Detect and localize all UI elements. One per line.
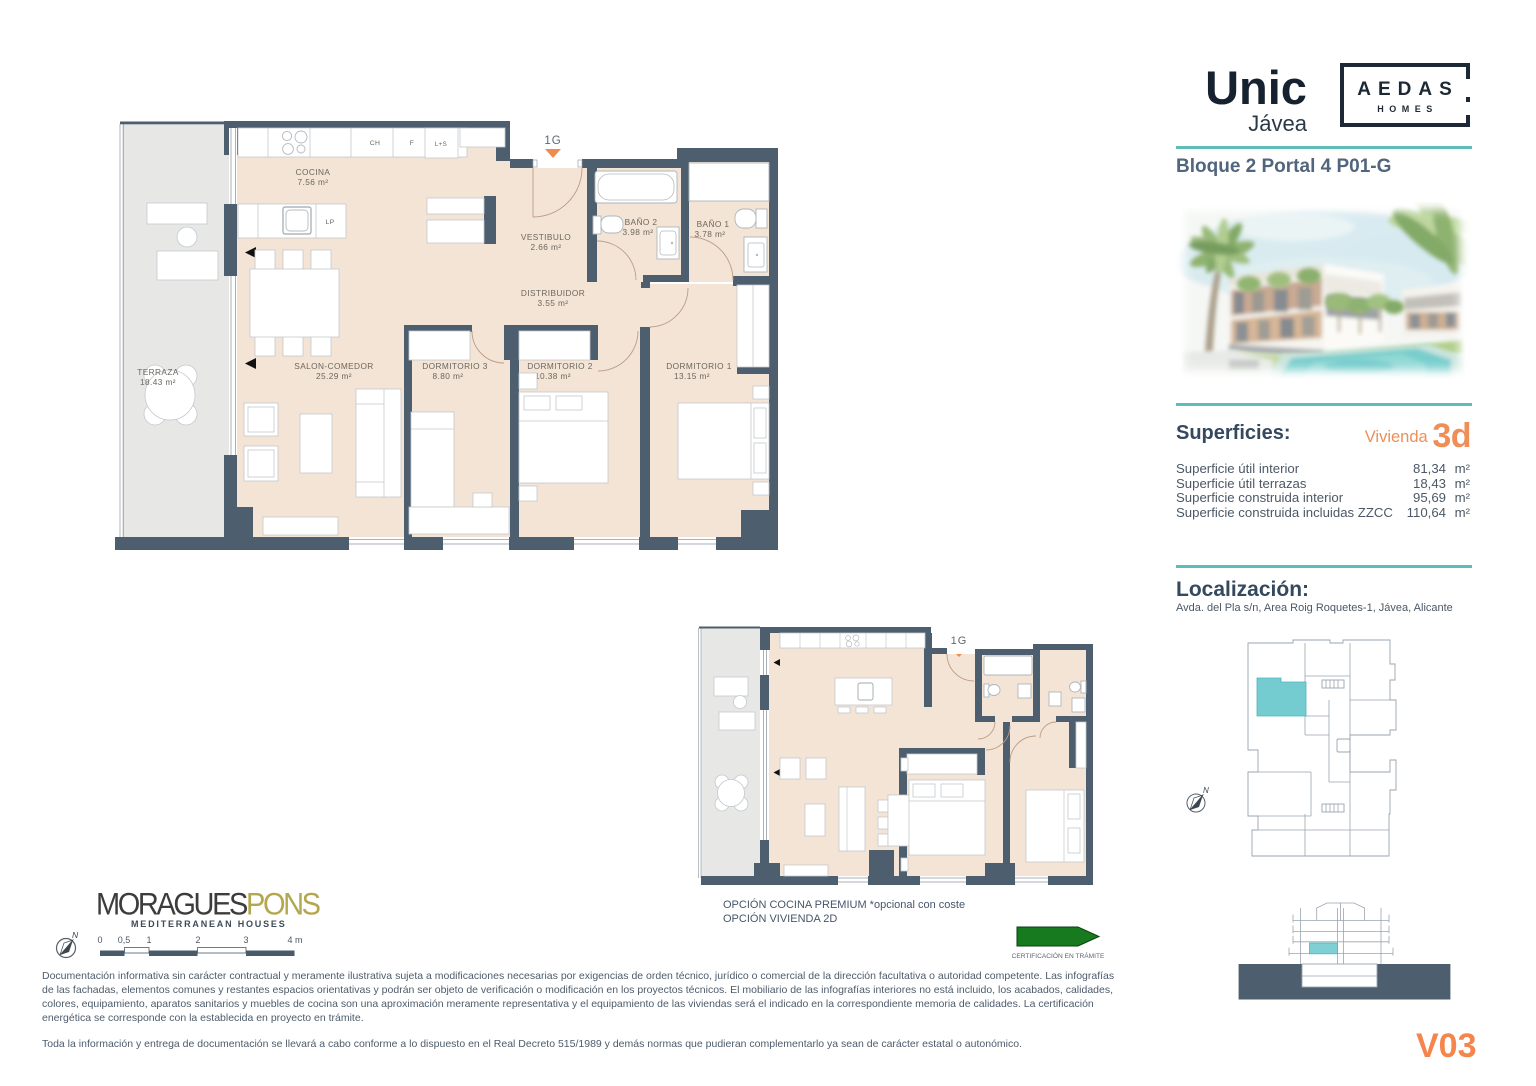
svg-text:8.80 m²: 8.80 m²: [433, 371, 464, 381]
svg-text:1G: 1G: [544, 135, 561, 147]
svg-text:N: N: [1203, 786, 1209, 795]
svg-text:13.15 m²: 13.15 m²: [674, 371, 710, 381]
svg-text:2.66 m²: 2.66 m²: [531, 242, 562, 252]
svg-text:TERRAZA: TERRAZA: [137, 367, 179, 377]
svg-text:L+S: L+S: [435, 141, 447, 148]
svg-text:4 m: 4 m: [287, 935, 302, 945]
svg-text:DISTRIBUIDOR: DISTRIBUIDOR: [521, 288, 585, 298]
svg-text:SALON-COMEDOR: SALON-COMEDOR: [294, 361, 373, 371]
svg-text:25.29 m²: 25.29 m²: [316, 371, 352, 381]
svg-text:3.55 m²: 3.55 m²: [538, 298, 569, 308]
svg-text:DORMITORIO 2: DORMITORIO 2: [527, 361, 593, 371]
svg-text:LP: LP: [325, 219, 334, 226]
svg-text:3: 3: [243, 935, 248, 945]
svg-text:BAÑO 2: BAÑO 2: [625, 217, 658, 227]
svg-text:2: 2: [195, 935, 200, 945]
svg-text:1G: 1G: [951, 635, 968, 647]
svg-text:18.43 m²: 18.43 m²: [140, 377, 176, 387]
svg-text:N: N: [72, 930, 79, 940]
svg-text:BAÑO 1: BAÑO 1: [697, 219, 730, 229]
svg-text:VESTIBULO: VESTIBULO: [521, 232, 571, 242]
svg-text:1: 1: [146, 935, 151, 945]
svg-text:7.56 m²: 7.56 m²: [298, 177, 329, 187]
svg-text:10.38 m²: 10.38 m²: [535, 371, 571, 381]
svg-text:DORMITORIO 3: DORMITORIO 3: [422, 361, 488, 371]
svg-text:3.98 m²: 3.98 m²: [623, 227, 654, 237]
svg-text:0: 0: [97, 935, 102, 945]
svg-text:COCINA: COCINA: [296, 167, 331, 177]
svg-text:F: F: [410, 140, 415, 147]
svg-text:CH: CH: [370, 140, 381, 147]
svg-text:0,5: 0,5: [118, 935, 131, 945]
svg-text:DORMITORIO 1: DORMITORIO 1: [666, 361, 732, 371]
